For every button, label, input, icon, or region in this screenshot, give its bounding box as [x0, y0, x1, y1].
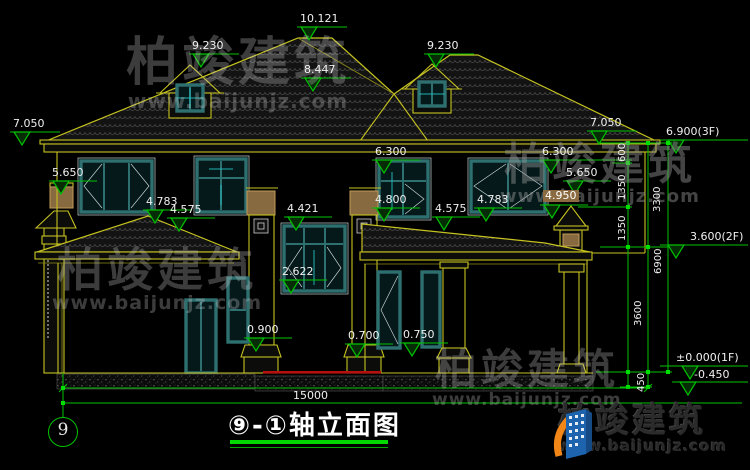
chain-label-600: 600	[617, 143, 629, 162]
main-roof	[46, 38, 656, 141]
level-label-5650-r: 5.650	[566, 167, 598, 179]
chain-label-6900: 6900	[653, 249, 665, 274]
level-label-0750: 0.750	[403, 329, 435, 341]
brand-logo: 柏竣建筑 www.baijunjz.com	[552, 404, 727, 454]
level-label-valley: 8.447	[304, 64, 336, 76]
level-label-1f: ±0.000(1F)	[676, 352, 739, 364]
porch-right	[360, 224, 592, 373]
level-label-2f: 3.600(2F)	[690, 231, 743, 243]
level-label-6300-a: 6.300	[375, 146, 407, 158]
level-label-3f: 6.900(3F)	[666, 126, 719, 138]
level-label-2622: 2.622	[282, 266, 314, 278]
chimney-left	[36, 183, 76, 373]
level-label-minus450: -0.450	[694, 369, 729, 381]
elevation-drawing	[0, 0, 750, 470]
level-label-6300-b: 6.300	[542, 146, 574, 158]
cad-elevation-canvas: 柏竣建筑 www.baijunjz.com 柏竣建筑 www.baijunjz.…	[0, 0, 750, 470]
title-underline-thick	[230, 440, 388, 444]
level-label-4575-l: 4.575	[170, 204, 202, 216]
level-label-0900: 0.900	[247, 324, 279, 336]
window-2f-right2	[468, 158, 548, 215]
level-label-eave-l: 7.050	[13, 118, 45, 130]
axis-bubble-number: 9	[49, 420, 77, 440]
dim-label-15000: 15000	[293, 390, 328, 402]
level-label-dormer-r: 9.230	[427, 40, 459, 52]
window-2f-left	[78, 158, 155, 215]
window-2f-left2	[194, 156, 249, 215]
chain-label-1350a: 1350	[617, 175, 629, 200]
level-label-4950: 4.950	[543, 190, 579, 202]
chain-label-450: 450	[636, 373, 648, 392]
level-label-4575-r: 4.575	[435, 203, 467, 215]
drawing-title: ⑨-①轴立面图	[228, 405, 401, 442]
level-label-ridge: 10.121	[300, 13, 339, 25]
threshold-red-line	[263, 371, 381, 374]
chain-label-3600: 3600	[633, 301, 645, 326]
brand-logo-icon	[552, 404, 598, 462]
level-label-5650-l: 5.650	[52, 167, 84, 179]
chain-label-1350b: 1350	[617, 216, 629, 241]
level-label-4800: 4.800	[375, 194, 407, 206]
chain-label-3300: 3300	[652, 187, 664, 212]
level-label-0700: 0.700	[348, 330, 380, 342]
level-label-4421: 4.421	[287, 203, 319, 215]
level-label-dormer-l: 9.230	[192, 40, 224, 52]
level-label-eave-r: 7.050	[590, 117, 622, 129]
level-label-4783-r: 4.783	[477, 194, 509, 206]
title-underline-thin	[230, 447, 388, 448]
porch-left	[35, 216, 248, 373]
